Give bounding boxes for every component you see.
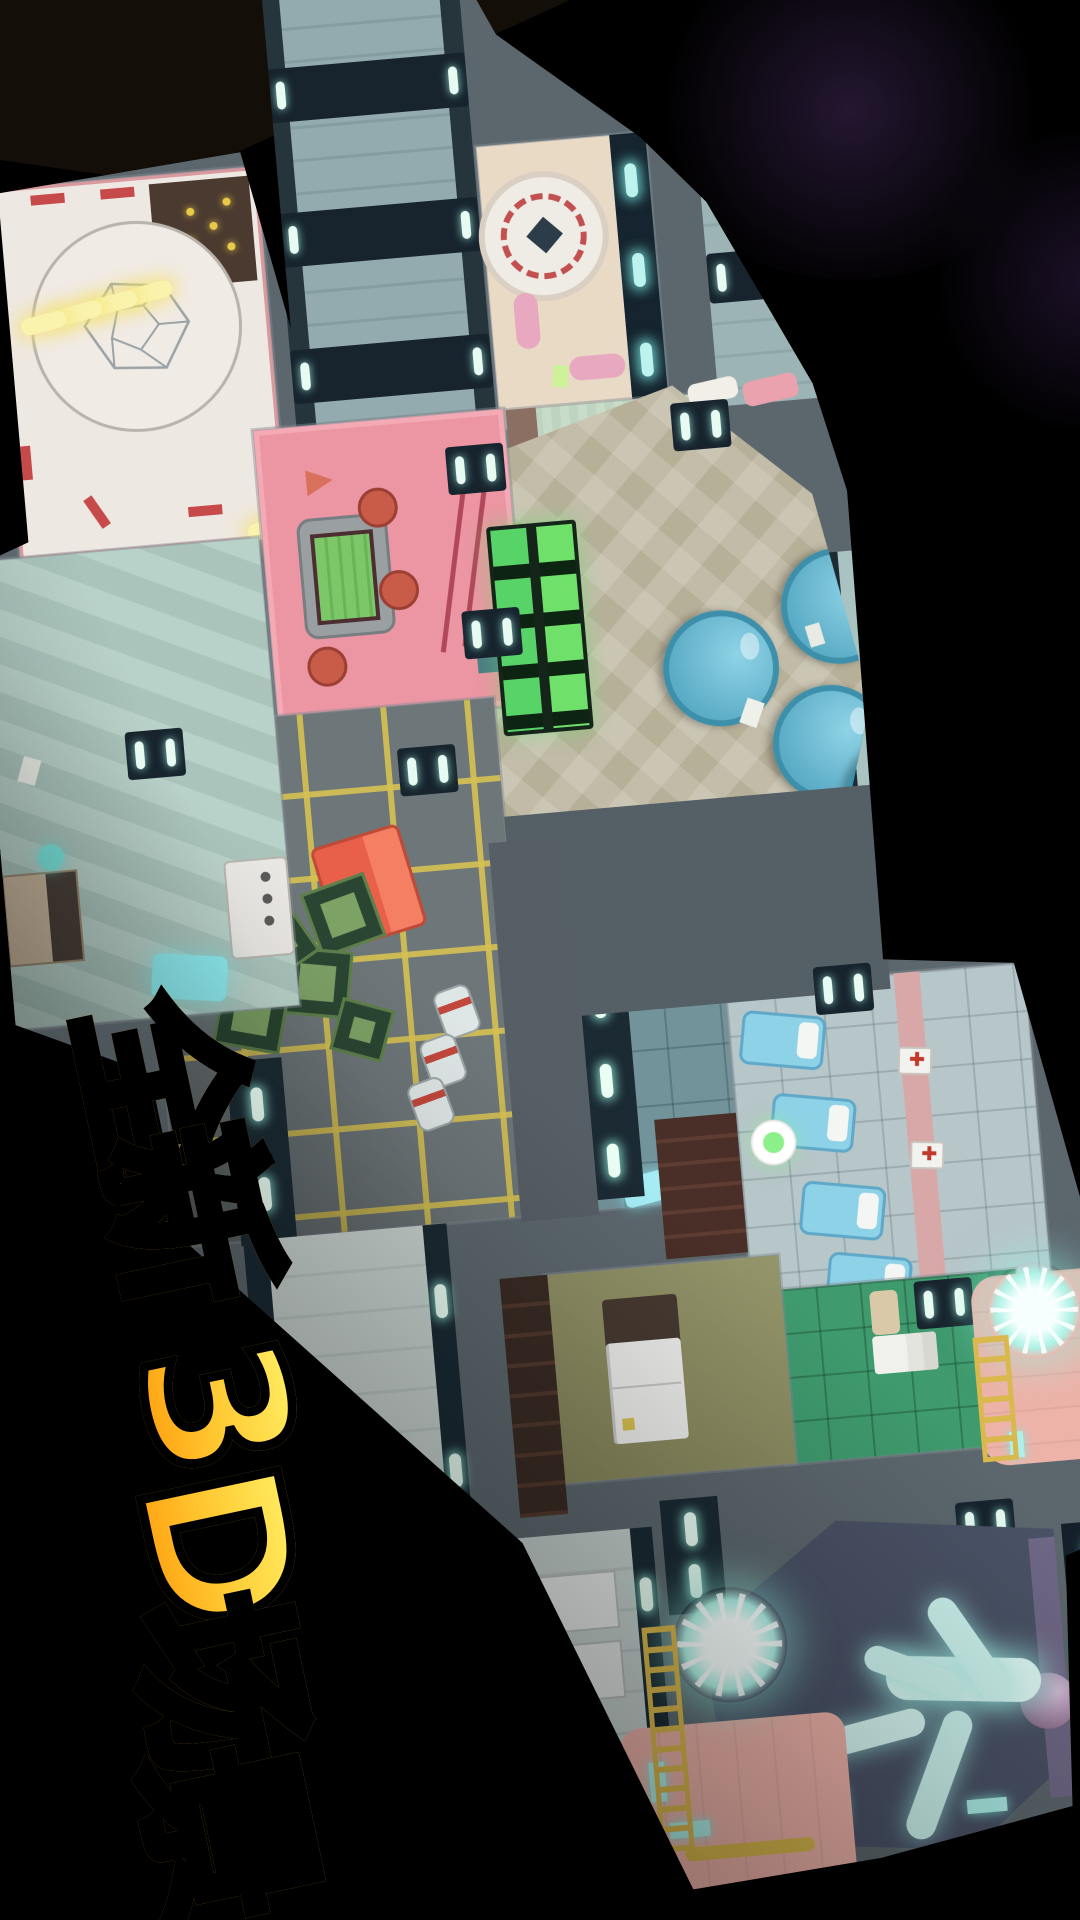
door-light — [962, 700, 977, 735]
room-door — [461, 607, 523, 660]
door-light — [463, 1622, 478, 1657]
red-rail — [83, 495, 111, 529]
corridor-edge-band — [943, 541, 987, 792]
door-light — [599, 1063, 614, 1098]
corridor-edge-band — [422, 1223, 507, 1920]
medbay — [725, 962, 1051, 1297]
room-door — [812, 962, 874, 1015]
pink-pipe — [513, 292, 542, 350]
medbay-cross-door — [898, 1047, 932, 1076]
door-light — [606, 1143, 621, 1178]
door-light — [448, 1453, 463, 1488]
carpet-corridor — [654, 1113, 748, 1260]
door-light — [951, 581, 966, 616]
red-rail — [188, 504, 223, 517]
launch-polyhedron-mark — [72, 261, 202, 391]
door-light — [688, 1564, 703, 1599]
medbay-cross-door — [910, 1141, 944, 1170]
office-shadow — [0, 537, 300, 1030]
medbay-wall — [893, 971, 946, 1282]
promo-screenshot: 全 新 3 D 场 景 — [0, 0, 1080, 1920]
cafeteria-table — [768, 680, 894, 806]
red-wedge — [294, 464, 333, 503]
room-door — [445, 443, 507, 496]
kitchen-table — [869, 1289, 901, 1335]
green-note — [552, 365, 569, 388]
medbay-bed — [739, 1010, 827, 1071]
caption-char: 新 — [74, 1104, 299, 1329]
door-light — [639, 1577, 654, 1612]
room-door — [670, 399, 732, 452]
launch-pad-room — [0, 166, 289, 561]
reactor-room — [476, 132, 670, 431]
medbay-bed — [799, 1180, 887, 1241]
caption: 全 新 3 D 场 景 — [0, 980, 340, 1920]
white-door-panel — [528, 1640, 627, 1706]
cafeteria-table — [658, 605, 784, 731]
white-door-panel — [522, 1570, 621, 1636]
reactor-core — [473, 166, 614, 307]
pink-pipe — [568, 353, 626, 382]
door-light — [684, 1512, 699, 1547]
pantry-cabinet — [602, 1294, 689, 1445]
office-room — [0, 537, 300, 1030]
room-door — [397, 744, 459, 797]
lounge-stool — [306, 645, 349, 688]
red-rail — [30, 193, 65, 206]
room-door — [124, 728, 186, 781]
corridor-reactor-side — [689, 54, 819, 406]
game-table-screen — [310, 529, 381, 625]
room-door — [913, 1277, 975, 1330]
door-light — [434, 1284, 449, 1319]
kitchen-shelf — [872, 1331, 939, 1374]
game-table — [295, 512, 396, 640]
pantry-room — [544, 1255, 796, 1485]
corridor-door-frame — [694, 104, 798, 163]
red-rail — [20, 446, 33, 481]
corridor-door-frame — [706, 245, 810, 304]
hazard-sticker — [622, 1418, 635, 1431]
red-rail — [100, 187, 135, 200]
